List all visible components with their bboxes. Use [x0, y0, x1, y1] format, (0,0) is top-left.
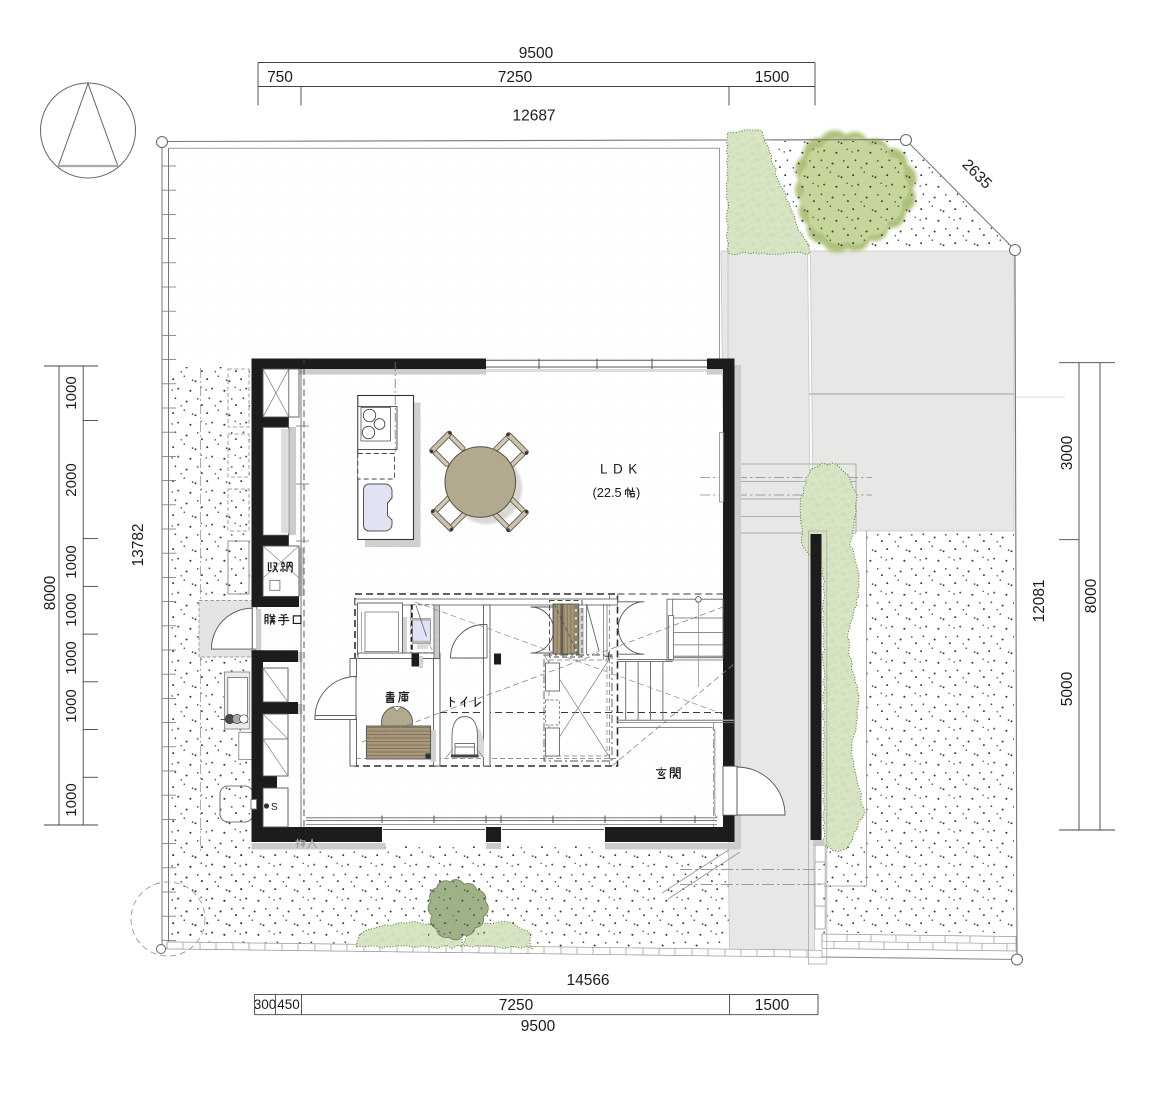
- svg-text:1500: 1500: [755, 69, 790, 86]
- svg-text:1000: 1000: [63, 783, 80, 816]
- svg-text:12687: 12687: [512, 108, 555, 125]
- svg-text:9500: 9500: [521, 1018, 556, 1035]
- svg-text:1000: 1000: [63, 376, 80, 409]
- svg-text:7250: 7250: [499, 997, 534, 1014]
- svg-text:9500: 9500: [519, 45, 554, 62]
- svg-text:LDK: LDK: [600, 462, 643, 477]
- svg-text:13782: 13782: [130, 523, 147, 566]
- svg-text:1000: 1000: [63, 545, 80, 578]
- svg-text:12081: 12081: [1031, 579, 1048, 622]
- svg-text:S: S: [271, 802, 278, 813]
- svg-text:7250: 7250: [498, 69, 533, 86]
- svg-text:(22.5: (22.5: [593, 485, 622, 500]
- svg-text:5000: 5000: [1059, 671, 1076, 706]
- svg-text:1000: 1000: [63, 593, 80, 626]
- svg-text:3000: 3000: [1059, 435, 1076, 470]
- svg-text:1000: 1000: [63, 689, 80, 722]
- svg-text:450: 450: [277, 997, 300, 1012]
- svg-text:1000: 1000: [63, 641, 80, 674]
- svg-text:): ): [636, 485, 640, 500]
- svg-text:8000: 8000: [1083, 578, 1100, 613]
- svg-text:8000: 8000: [42, 575, 59, 610]
- svg-text:300: 300: [254, 997, 277, 1012]
- svg-text:1500: 1500: [755, 997, 790, 1014]
- svg-text:750: 750: [267, 69, 293, 86]
- svg-text:14566: 14566: [566, 972, 609, 989]
- svg-text:2000: 2000: [63, 463, 80, 496]
